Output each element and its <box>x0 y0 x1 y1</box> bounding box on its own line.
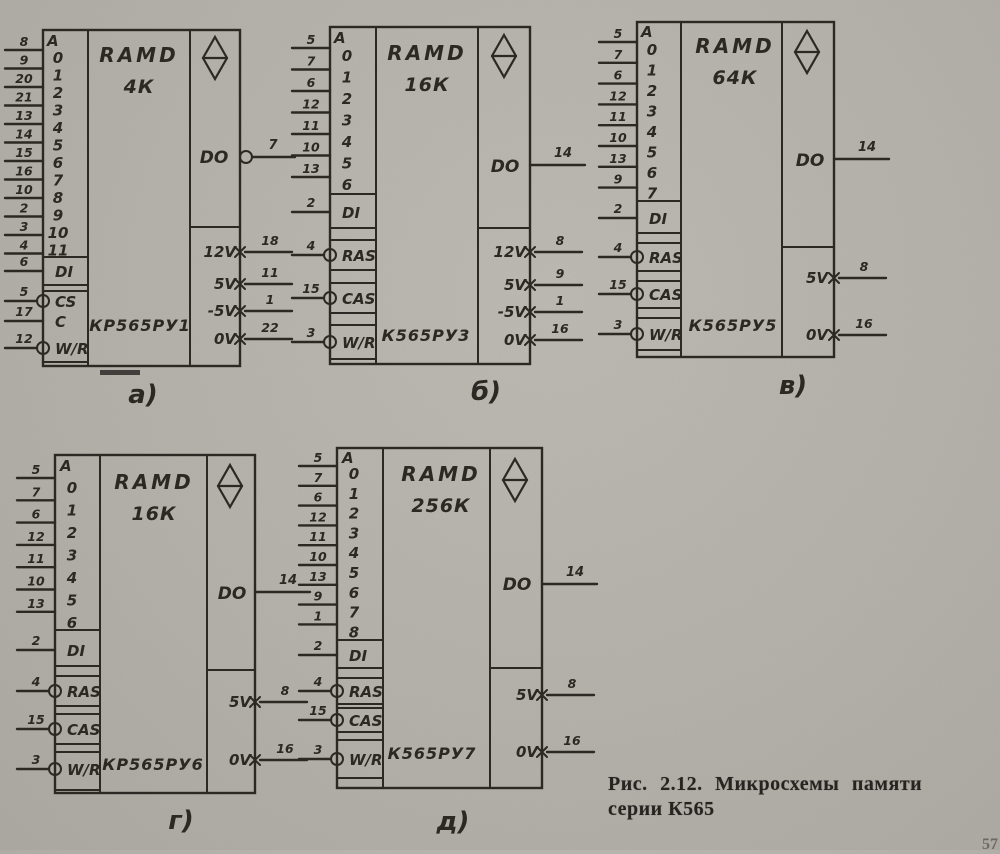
chip-title-label: RAMD <box>695 34 774 58</box>
pin-number: 1 <box>314 608 323 623</box>
control-label: CAS <box>649 286 682 304</box>
addr-bit-label: 6 <box>67 614 77 632</box>
pin-number: 20 <box>15 71 33 86</box>
pin-number: 22 <box>261 320 278 335</box>
addr-bit-label: 2 <box>53 84 63 102</box>
control-label: RAS <box>342 247 376 265</box>
control-label: W/R <box>67 761 101 779</box>
pin-number: 5 <box>614 26 623 41</box>
power-label: 0V <box>229 751 252 769</box>
pin-number: 10 <box>27 574 45 589</box>
addr-bit-label: 3 <box>349 524 359 542</box>
pin-number: 8 <box>568 676 577 691</box>
pin-number: 15 <box>309 703 327 718</box>
pin-number: 3 <box>314 742 323 757</box>
do-label: DO <box>491 157 520 177</box>
pin-number: 15 <box>302 281 320 296</box>
do-label: DO <box>200 148 229 168</box>
figure-caption: Рис. 2.12. Микросхемы памяти серии К565 <box>608 772 1000 822</box>
addr-header-label: A <box>640 23 653 41</box>
pin-number: 15 <box>15 145 33 160</box>
pin-number: 2 <box>32 633 41 648</box>
control-label: RAS <box>349 683 383 701</box>
power-label: 5V <box>504 276 527 294</box>
power-label: 0V <box>504 331 527 349</box>
power-label: -5V <box>498 303 528 321</box>
pin-number: 7 <box>268 138 278 153</box>
pin-number: 15 <box>27 712 45 727</box>
pin-number: 10 <box>609 130 627 145</box>
addr-bit-label: 4 <box>348 544 359 562</box>
diagram-letter-label: в) <box>779 371 807 401</box>
power-label: -5V <box>208 302 238 320</box>
control-label: CS <box>55 293 76 311</box>
addr-bit-label: 2 <box>647 82 657 100</box>
pin-number: 7 <box>614 47 623 62</box>
pin-number: 16 <box>276 741 294 756</box>
pin-number: 18 <box>261 233 279 248</box>
chip-title-label: RAMD <box>387 41 466 65</box>
pin-number: 3 <box>307 325 316 340</box>
addr-bit-label: 4 <box>646 123 657 141</box>
pin-number: 15 <box>609 277 627 292</box>
addr-header-label: A <box>46 32 59 50</box>
addr-bit-label: 7 <box>349 604 360 622</box>
addr-bit-label: 2 <box>349 505 359 523</box>
pin-number: 12 <box>302 97 319 112</box>
pin-number: 3 <box>20 219 29 234</box>
pin-number: 11 <box>27 551 44 566</box>
addr-bit-label: 8 <box>349 623 359 641</box>
pin-number: 7 <box>32 484 41 499</box>
pin-number: 7 <box>314 470 323 485</box>
addr-header-label: A <box>59 457 72 475</box>
pin-number: 4 <box>31 674 41 689</box>
addr-bit-label: 5 <box>342 155 352 173</box>
pin-number: 6 <box>307 75 316 90</box>
pin-number: 13 <box>302 161 319 176</box>
part-number-label: КР565РУ1 <box>89 316 190 335</box>
page-number: 57 <box>982 836 998 854</box>
addr-bit-label: 4 <box>341 133 352 151</box>
pin-number: 12 <box>309 509 326 524</box>
power-label: 5V <box>806 269 829 287</box>
addr-bit-label: 5 <box>647 144 657 162</box>
addr-bit-label: 0 <box>349 465 359 483</box>
addr-header-label: A <box>333 29 346 47</box>
diagram-letter-label: г) <box>168 806 193 836</box>
addr-bit-label: 2 <box>67 524 77 542</box>
pin-number: 8 <box>556 233 565 248</box>
pin-number: 10 <box>309 549 327 564</box>
pin-number: 8 <box>281 683 290 698</box>
addr-bit-label: 1 <box>342 69 352 87</box>
pin-number: 5 <box>20 284 29 299</box>
control-label: W/R <box>649 326 683 344</box>
pin-number: 6 <box>314 490 323 505</box>
control-label: DI <box>342 204 360 222</box>
addr-bit-label: 0 <box>53 49 63 67</box>
pin-number: 3 <box>32 752 41 767</box>
pin-number: 12 <box>27 529 44 544</box>
pin-number: 12 <box>609 88 626 103</box>
pin-number: 12 <box>15 331 32 346</box>
scanned-figure: A0123456789101189202113141516102346DI5CS… <box>0 0 1000 850</box>
control-label: DI <box>67 642 85 660</box>
pin-number: 6 <box>32 507 41 522</box>
scan-artifact <box>100 370 140 375</box>
pin-number: 2 <box>307 195 316 210</box>
addr-bit-label: 3 <box>67 547 77 565</box>
addr-bit-label: 1 <box>349 485 359 503</box>
pin-number: 14 <box>279 573 297 588</box>
chip-title-label: RAMD <box>401 462 480 486</box>
capacity-label: 16К <box>132 503 177 525</box>
power-label: 5V <box>516 686 539 704</box>
pin-number: 16 <box>855 316 873 331</box>
pin-number: 13 <box>309 569 326 584</box>
pin-number: 11 <box>609 109 626 124</box>
addr-bit-label: 6 <box>647 164 657 182</box>
addr-bit-label: 4 <box>66 569 77 587</box>
pin-number: 17 <box>15 304 33 319</box>
capacity-label: 256К <box>411 495 471 517</box>
pin-number: 4 <box>306 238 316 253</box>
power-label: 0V <box>214 330 237 348</box>
addr-bit-label: 4 <box>52 119 63 137</box>
pin-number: 6 <box>614 68 623 83</box>
control-label: W/R <box>349 751 383 769</box>
pin-number: 9 <box>20 53 29 68</box>
pin-number: 13 <box>15 108 32 123</box>
pin-number: 9 <box>314 589 323 604</box>
pin-number: 4 <box>613 240 623 255</box>
do-label: DO <box>503 575 532 595</box>
addr-bit-label: 8 <box>53 189 63 207</box>
pin-number: 1 <box>556 293 565 308</box>
do-label: DO <box>218 584 247 604</box>
pin-number: 5 <box>307 32 316 47</box>
capacity-label: 4К <box>123 76 155 98</box>
addr-bit-label: 0 <box>342 47 352 65</box>
pin-number: 4 <box>313 674 323 689</box>
part-number-label: КР565РУ6 <box>102 755 203 774</box>
pin-number: 16 <box>551 321 569 336</box>
pin-number: 14 <box>566 565 584 580</box>
addr-bit-label: 1 <box>67 502 77 520</box>
pin-number: 5 <box>32 462 41 477</box>
capacity-label: 64К <box>713 67 758 89</box>
control-label: CAS <box>349 712 382 730</box>
paper-grain-texture <box>0 0 1000 850</box>
pin-number: 13 <box>27 596 44 611</box>
caption-line-1: Рис. 2.12. Микросхемы памяти <box>608 772 1000 797</box>
pin-number: 16 <box>15 164 33 179</box>
addr-bit-label: 9 <box>53 207 63 225</box>
chip-title-label: RAMD <box>114 470 193 494</box>
diagram-letter-label: д) <box>436 807 470 837</box>
pin-number: 8 <box>20 34 29 49</box>
addr-bit-label: 2 <box>342 90 352 108</box>
diagram-letter-label: б) <box>471 377 501 407</box>
addr-bit-label: 0 <box>647 41 657 59</box>
pin-number: 11 <box>261 265 278 280</box>
power-label: 12V <box>494 243 528 261</box>
pin-number: 3 <box>614 317 623 332</box>
pin-number: 13 <box>609 151 626 166</box>
pin-number: 6 <box>20 254 29 269</box>
control-label: DI <box>649 210 667 228</box>
addr-bit-label: 11 <box>48 242 69 260</box>
pin-number: 9 <box>614 172 623 187</box>
addr-bit-label: 3 <box>342 112 352 130</box>
pin-number: 4 <box>19 238 29 253</box>
capacity-label: 16К <box>405 74 450 96</box>
addr-bit-label: 3 <box>647 103 657 121</box>
pin-number: 7 <box>307 54 316 69</box>
chip-title-label: RAMD <box>99 43 178 67</box>
control-label: CAS <box>67 721 100 739</box>
pin-number: 10 <box>302 140 320 155</box>
addr-bit-label: 0 <box>67 479 77 497</box>
pin-number: 11 <box>309 529 326 544</box>
addr-bit-label: 3 <box>53 102 63 120</box>
control-label: DI <box>349 647 367 665</box>
pin-number: 11 <box>302 118 319 133</box>
pin-number: 14 <box>15 127 32 142</box>
control-label: RAS <box>67 683 101 701</box>
pin-number: 2 <box>20 201 29 216</box>
addr-bit-label: 5 <box>53 137 63 155</box>
part-number-label: К565РУ7 <box>388 744 477 763</box>
addr-bit-label: 6 <box>53 154 63 172</box>
power-label: 0V <box>806 326 829 344</box>
addr-bit-label: 5 <box>67 592 77 610</box>
pin-number: 8 <box>860 259 869 274</box>
addr-bit-label: 1 <box>647 62 657 80</box>
caption-line-2: серии К565 <box>608 797 1000 822</box>
power-label: 5V <box>229 693 252 711</box>
control-label: RAS <box>649 249 683 267</box>
control-label: CAS <box>342 290 375 308</box>
pin-number: 10 <box>15 182 33 197</box>
part-number-label: К565РУ3 <box>382 326 471 345</box>
control-label: DI <box>55 263 73 281</box>
addr-bit-label: 7 <box>53 172 64 190</box>
diagram-letter-label: а) <box>128 380 157 410</box>
pin-number: 9 <box>556 266 565 281</box>
pin-number: 21 <box>15 90 32 105</box>
addr-bit-label: 5 <box>349 564 359 582</box>
pin-number: 16 <box>563 733 581 748</box>
power-label: 12V <box>204 243 238 261</box>
control-label: W/R <box>55 340 89 358</box>
pin-number: 2 <box>314 638 323 653</box>
power-label: 0V <box>516 743 539 761</box>
control-label: C <box>55 313 66 331</box>
do-label: DO <box>796 151 825 171</box>
pin-number: 5 <box>314 450 323 465</box>
pin-number: 14 <box>554 146 572 161</box>
addr-bit-label: 6 <box>349 584 359 602</box>
control-label: W/R <box>342 334 376 352</box>
pin-number: 2 <box>614 201 623 216</box>
addr-bit-label: 7 <box>647 185 658 203</box>
addr-bit-label: 10 <box>48 224 69 242</box>
pin-number: 1 <box>266 292 275 307</box>
part-number-label: К565РУ5 <box>689 316 778 335</box>
addr-bit-label: 1 <box>53 67 63 85</box>
addr-bit-label: 6 <box>342 176 352 194</box>
power-label: 5V <box>214 275 237 293</box>
pin-number: 14 <box>858 140 876 155</box>
